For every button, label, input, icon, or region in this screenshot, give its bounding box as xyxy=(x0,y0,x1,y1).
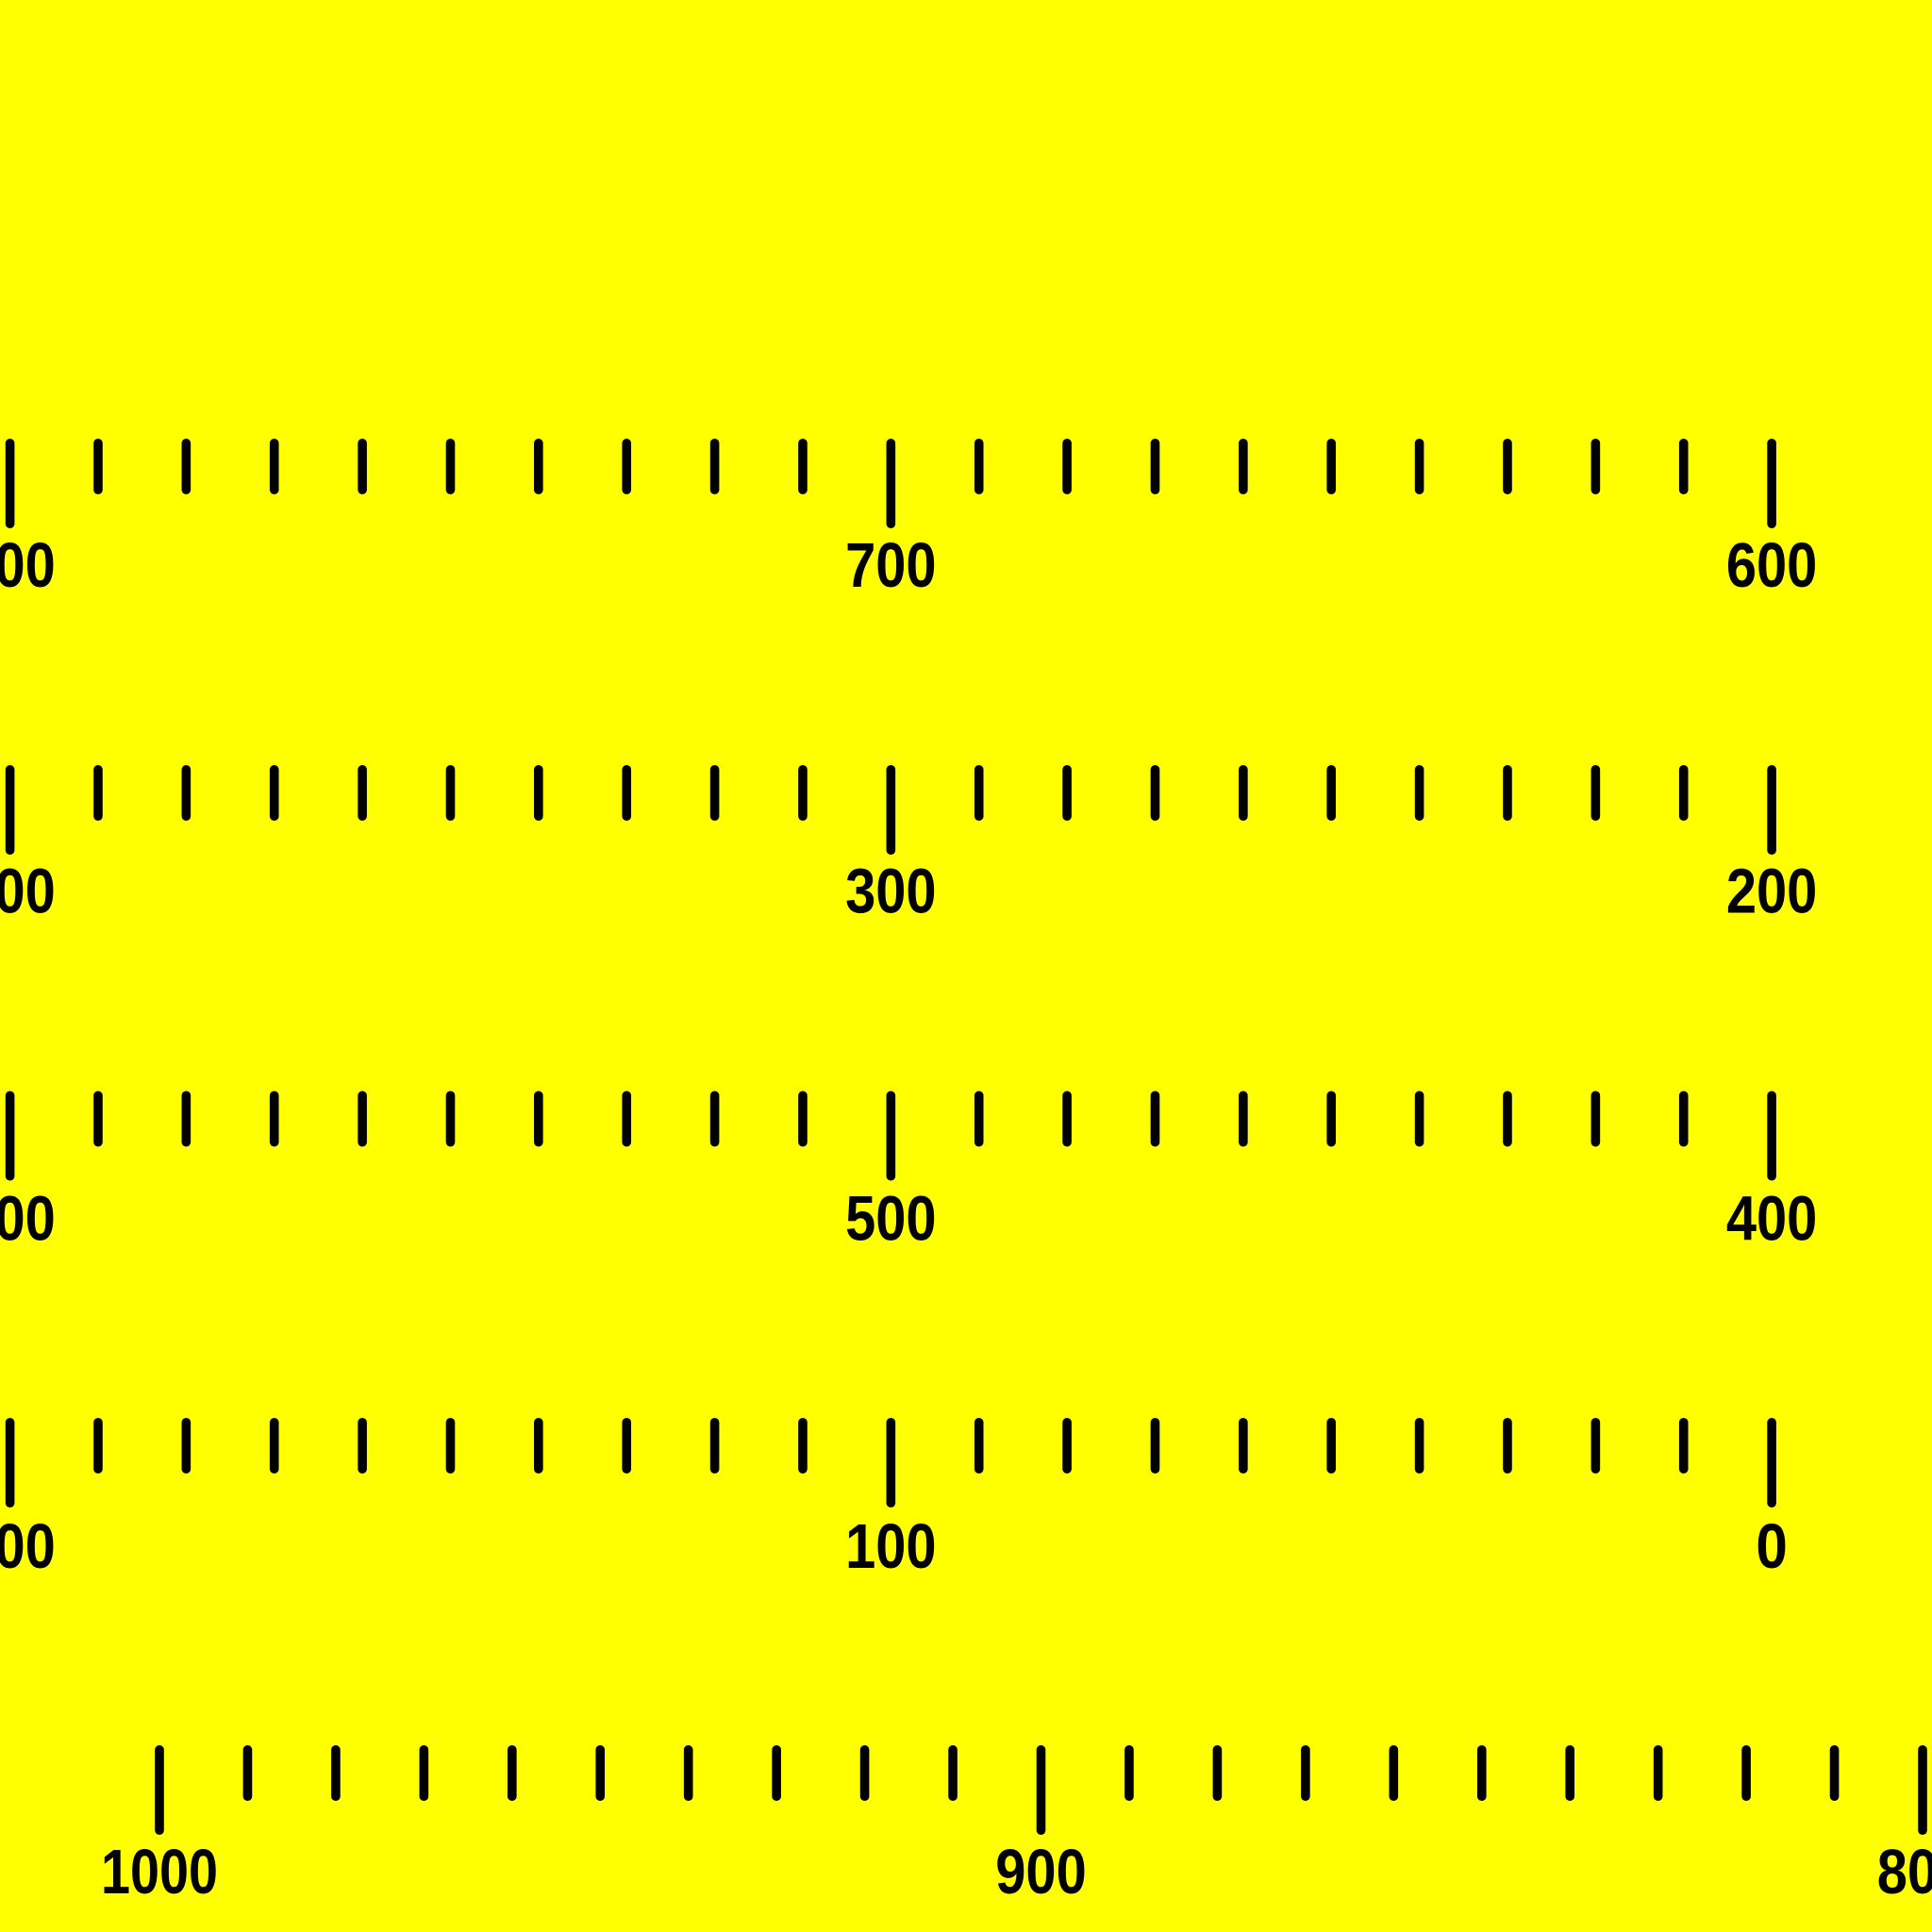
svg-text:500: 500 xyxy=(845,1184,937,1255)
svg-text:300: 300 xyxy=(845,857,937,927)
svg-text:400: 400 xyxy=(1726,1184,1818,1255)
svg-text:600: 600 xyxy=(0,1184,56,1255)
svg-text:800: 800 xyxy=(1877,1837,1932,1907)
svg-text:800: 800 xyxy=(0,530,56,601)
svg-text:100: 100 xyxy=(845,1511,937,1582)
svg-text:900: 900 xyxy=(995,1837,1087,1907)
svg-text:200: 200 xyxy=(1726,857,1818,927)
svg-text:400: 400 xyxy=(0,857,56,927)
svg-text:200: 200 xyxy=(0,1511,56,1582)
svg-text:1000: 1000 xyxy=(101,1837,218,1907)
svg-text:700: 700 xyxy=(845,530,937,601)
svg-text:600: 600 xyxy=(1726,530,1818,601)
svg-text:0: 0 xyxy=(1756,1511,1788,1582)
